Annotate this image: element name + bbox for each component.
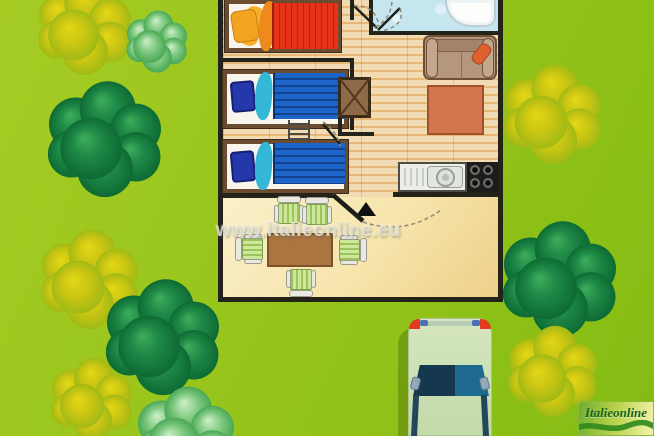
logo-wave-icon <box>579 420 654 434</box>
campsite-floorplan-illustration: www.italieonline.eu Italieonline <box>0 0 654 436</box>
parked-car <box>398 316 498 436</box>
logo-brand-text: Italieonline <box>579 405 653 421</box>
car-pillar <box>411 395 419 436</box>
tree-light <box>126 11 187 73</box>
plan-linework <box>223 0 498 297</box>
car-windshield <box>413 365 489 396</box>
italieonline-logo-badge: Italieonline <box>578 401 654 436</box>
tree-yellow <box>504 65 601 164</box>
watermark-text: www.italieonline.eu <box>216 220 401 242</box>
car-body <box>408 318 492 436</box>
tree-dark <box>48 81 161 197</box>
side-mirror-icon <box>479 376 491 391</box>
tree-light <box>137 387 234 436</box>
mobile-home-floorplan <box>218 0 503 302</box>
car-rear-window <box>425 321 477 326</box>
tree-yellow <box>38 0 131 75</box>
bunk-ladder-icon <box>289 120 309 141</box>
tail-light-blue-icon <box>420 320 428 326</box>
tail-light-icon <box>409 319 420 329</box>
tree-dark <box>503 221 616 337</box>
wardrobe-x-icon <box>339 78 370 117</box>
tail-light-icon <box>480 319 491 329</box>
tail-light-blue-icon <box>472 320 480 326</box>
door-leaves <box>323 4 400 221</box>
car-pillar <box>481 395 489 436</box>
